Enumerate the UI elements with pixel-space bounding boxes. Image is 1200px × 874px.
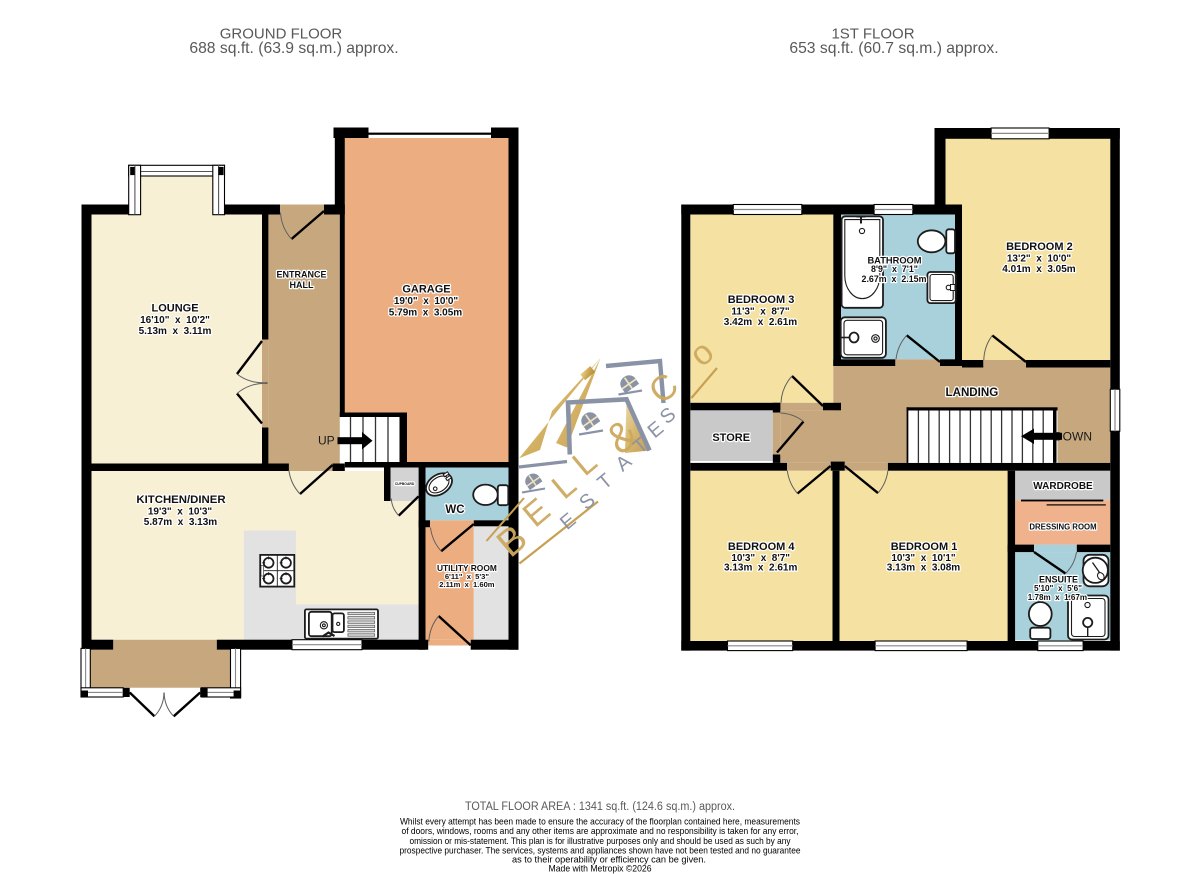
svg-text:19'3" x 10'3": 19'3" x 10'3" [148,507,213,518]
svg-text:STORE: STORE [712,432,750,444]
svg-text:LANDING: LANDING [945,386,998,399]
svg-text:TOTAL FLOOR AREA : 1341 sq.ft.: TOTAL FLOOR AREA : 1341 sq.ft. (124.6 sq… [465,801,735,813]
svg-text:4.01m x 3.05m: 4.01m x 3.05m [1002,264,1075,275]
svg-text:11'3" x 8'7": 11'3" x 8'7" [731,306,789,317]
svg-text:3.13m x 2.61m: 3.13m x 2.61m [724,563,797,574]
svg-text:UP: UP [318,433,335,447]
svg-text:LOUNGE: LOUNGE [151,303,198,315]
svg-text:BEDROOM 1: BEDROOM 1 [891,541,958,553]
svg-text:BEDROOM 3: BEDROOM 3 [728,294,795,306]
svg-text:WARDROBE: WARDROBE [1033,481,1093,492]
svg-text:Made with Metropix ©2026: Made with Metropix ©2026 [549,864,652,874]
svg-text:5.79m x 3.05m: 5.79m x 3.05m [389,307,462,318]
svg-text:19'0" x 10'0": 19'0" x 10'0" [394,296,459,307]
svg-text:2.11m x 1.60m: 2.11m x 1.60m [439,580,495,589]
svg-text:DRESSING ROOM: DRESSING ROOM [1029,523,1096,532]
svg-text:5.13m x 3.11m: 5.13m x 3.11m [139,326,212,337]
svg-text:KITCHEN/DINER: KITCHEN/DINER [136,494,225,506]
svg-text:BEDROOM 4: BEDROOM 4 [728,541,796,553]
svg-text:5.87m x 3.13m: 5.87m x 3.13m [144,517,217,528]
svg-text:13'2" x 10'0": 13'2" x 10'0" [1007,254,1072,265]
svg-text:8'9" x 7'1": 8'9" x 7'1" [871,264,918,274]
svg-text:3.13m x 3.08m: 3.13m x 3.08m [887,563,960,574]
svg-text:BEDROOM 2: BEDROOM 2 [1006,241,1073,253]
svg-text:1.78m x 1.67m: 1.78m x 1.67m [1028,593,1087,602]
svg-text:of doors, windows, rooms and a: of doors, windows, rooms and any other i… [402,826,799,836]
svg-text:omission or mis-statement. Thi: omission or mis-statement. This plan is … [410,836,791,846]
svg-text:653 sq.ft. (60.7 sq.m.) approx: 653 sq.ft. (60.7 sq.m.) approx. [789,40,998,57]
svg-text:ENSUITE: ENSUITE [1039,574,1078,584]
svg-text:16'10" x 10'2": 16'10" x 10'2" [140,315,210,326]
svg-text:WC: WC [445,504,464,516]
svg-text:ENTRANCE: ENTRANCE [276,270,326,280]
svg-text:3.42m x 2.61m: 3.42m x 2.61m [724,317,797,328]
svg-text:Whilst every attempt has been: Whilst every attempt has been made to en… [400,816,800,826]
svg-text:2.67m x 2.15m: 2.67m x 2.15m [862,274,927,284]
svg-text:688 sq.ft. (63.9 sq.m.) approx: 688 sq.ft. (63.9 sq.m.) approx. [189,40,398,57]
svg-text:CUPBOARD: CUPBOARD [395,482,415,486]
svg-text:HALL: HALL [290,280,314,290]
svg-text:5'10" x 5'6": 5'10" x 5'6" [1034,584,1082,593]
svg-text:GARAGE: GARAGE [402,284,450,296]
